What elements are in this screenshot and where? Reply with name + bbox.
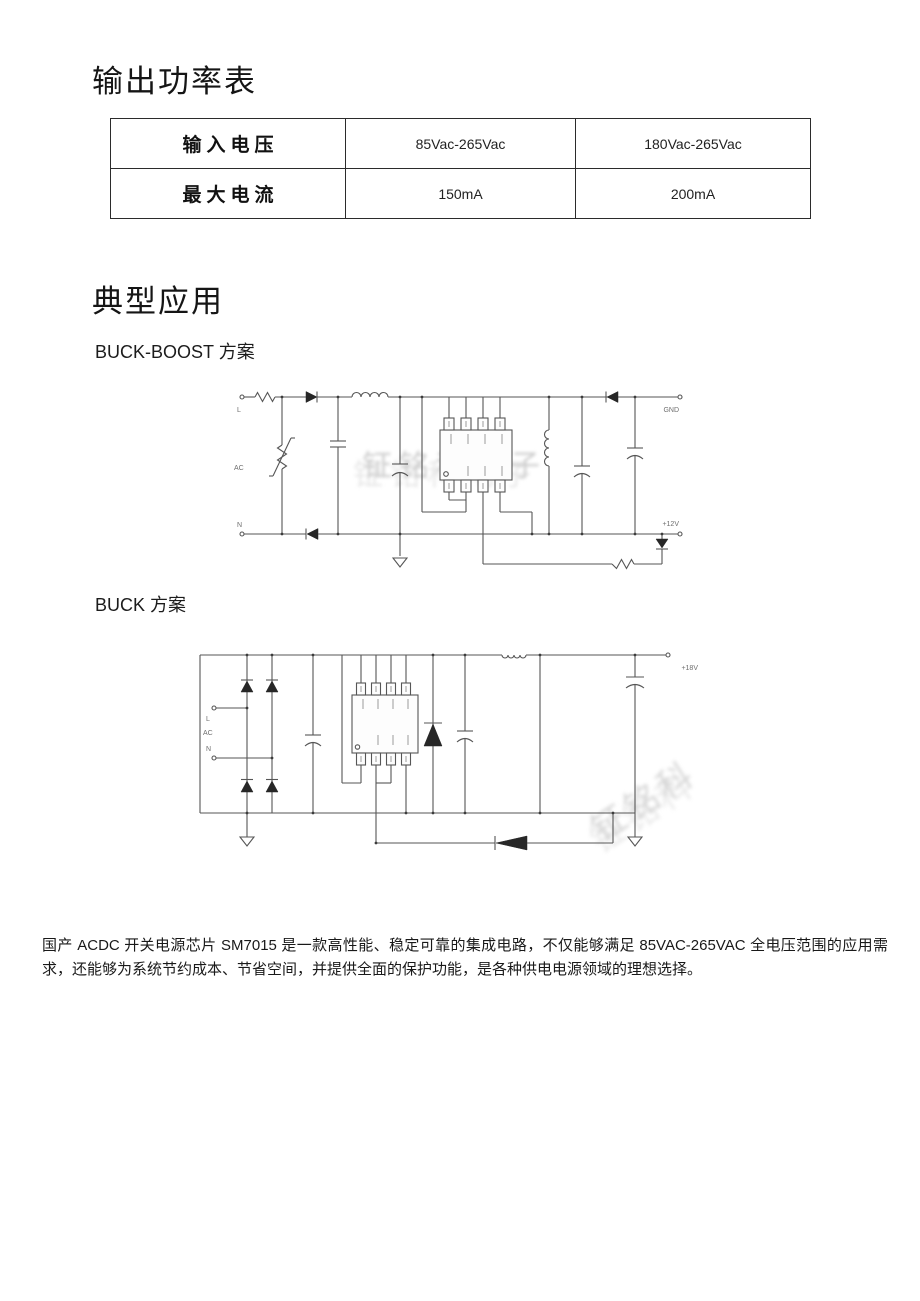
diode-rectifier-top (306, 392, 317, 403)
subtitle-buck: BUCK 方案 (95, 591, 186, 617)
ground-symbol-left (240, 837, 254, 846)
diode-rectifier-bottom (307, 529, 318, 540)
ground-symbol (393, 558, 407, 567)
terminal-line-in (212, 706, 216, 710)
bridge-diode-4 (266, 781, 278, 792)
diode-output-top (607, 392, 618, 403)
output-power-table: 输入电压 85Vac-265Vac 180Vac-265Vac 最大电流 150… (110, 118, 811, 219)
table-row-input-voltage: 输入电压 85Vac-265Vac 180Vac-265Vac (111, 119, 811, 169)
terminal-neutral-in (240, 532, 244, 536)
terminal-vout (678, 532, 682, 536)
row-header-max-current: 最大电流 (111, 169, 346, 219)
ic-top-pins (357, 655, 411, 695)
label-line: L (237, 407, 241, 414)
watermark-buck: 钲铭科 钲铭科 (579, 754, 709, 861)
input-inductor (352, 393, 388, 398)
ic-pin1-dot (444, 472, 449, 477)
table-row-max-current: 最大电流 150mA 200mA (111, 169, 811, 219)
fuse-resistor (255, 393, 275, 402)
cell-max-current-2: 200mA (576, 169, 811, 219)
section-title-typical-apps: 典型应用 (92, 276, 224, 321)
feedback-resistor (612, 560, 634, 569)
label-gnd: GND (663, 407, 679, 414)
label-ac: AC (234, 465, 244, 472)
buck-inductor (502, 655, 526, 658)
bridge-diode-1 (241, 681, 253, 692)
freewheel-diode (424, 724, 442, 746)
bridge-diode-2 (266, 681, 278, 692)
ic-pin1-dot (355, 745, 359, 749)
row-header-input-voltage: 输入电压 (111, 119, 346, 169)
terminal-gnd (678, 395, 682, 399)
section-title-output-power: 输出功率表 (92, 56, 257, 101)
label-line: L (206, 716, 210, 723)
label-vout-12v: +12V (662, 521, 679, 528)
bridge-diode-3 (241, 781, 253, 792)
zener-diode (656, 539, 668, 548)
ic-bottom-pins (357, 753, 411, 765)
footer-paragraph: 国产 ACDC 开关电源芯片 SM7015 是一款高性能、稳定可靠的集成电路，不… (42, 934, 888, 982)
cell-input-voltage-1: 85Vac-265Vac (346, 119, 576, 169)
ic-top-pins (444, 397, 505, 430)
label-ac: AC (203, 730, 213, 737)
label-neutral: N (206, 746, 211, 753)
terminal-vout (666, 653, 670, 657)
document-page: 输出功率表 输入电压 85Vac-265Vac 180Vac-265Vac 最大… (0, 0, 920, 1301)
cell-max-current-1: 150mA (346, 169, 576, 219)
buck-circuit-diagram: 钲铭科 钲铭科 (190, 640, 720, 870)
subtitle-buckboost: BUCK-BOOST 方案 (95, 338, 255, 364)
terminal-line-in (240, 395, 244, 399)
terminal-neutral-in (212, 756, 216, 760)
feedback-diode (496, 836, 527, 850)
buckboost-circuit-diagram: 钲铭科电子 钲铭科电子 (222, 382, 690, 582)
cell-input-voltage-2: 180Vac-265Vac (576, 119, 811, 169)
label-vout-18v: +18V (681, 665, 698, 672)
label-neutral: N (237, 522, 242, 529)
